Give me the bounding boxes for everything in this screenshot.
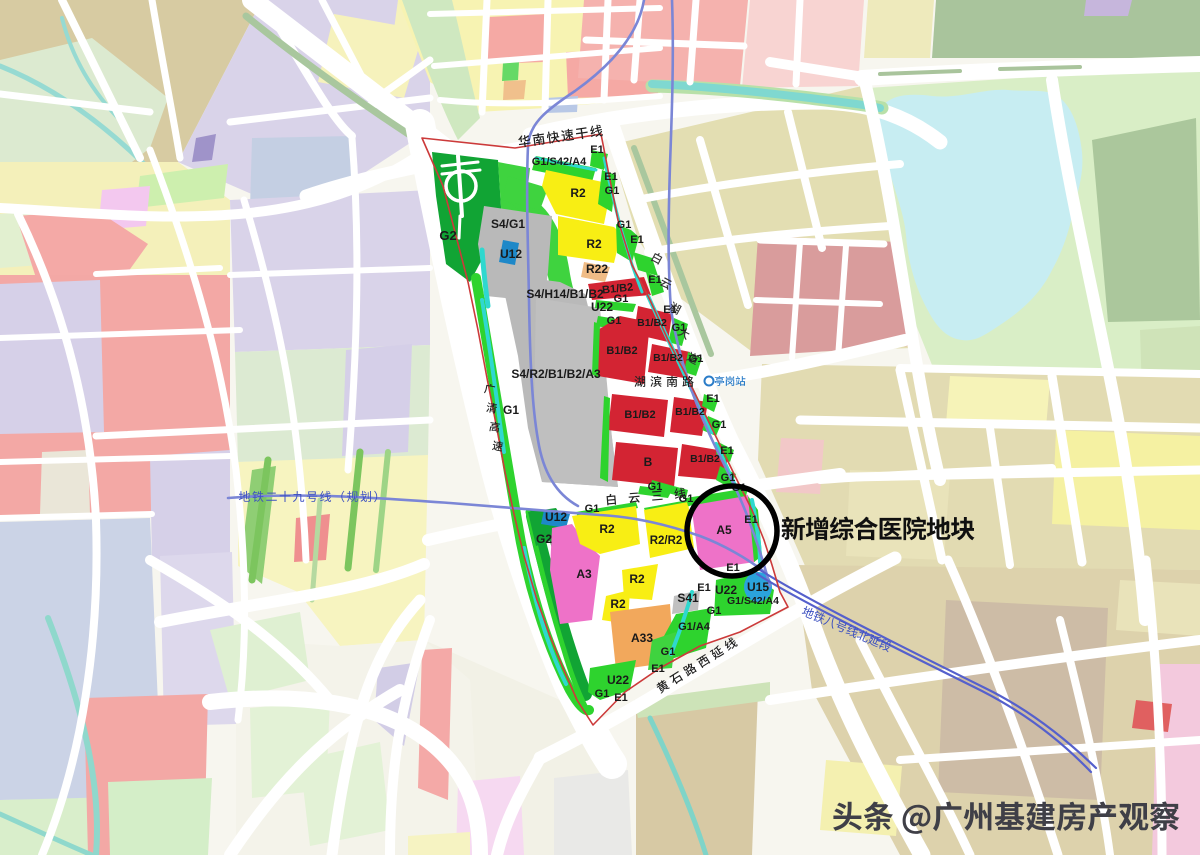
svg-text:R2: R2 (586, 237, 602, 251)
svg-text:E1: E1 (648, 274, 661, 286)
svg-text:G1: G1 (672, 322, 687, 334)
svg-text:S4/G1: S4/G1 (491, 217, 525, 231)
svg-text:G1: G1 (707, 605, 722, 617)
svg-text:U12: U12 (545, 510, 567, 524)
svg-text:B1/B2: B1/B2 (653, 352, 683, 364)
svg-text:R2: R2 (610, 597, 626, 611)
svg-text:U22: U22 (591, 300, 613, 314)
svg-text:E1: E1 (697, 582, 710, 594)
svg-text:R2: R2 (570, 186, 586, 200)
svg-text:B1/B2: B1/B2 (690, 453, 720, 465)
svg-text:E1: E1 (614, 692, 627, 704)
svg-text:A5: A5 (716, 523, 732, 537)
svg-text:E1: E1 (630, 234, 643, 246)
svg-text:E1: E1 (706, 393, 719, 405)
svg-text:E1: E1 (604, 171, 617, 183)
svg-text:G1: G1 (661, 646, 676, 658)
svg-text:G1: G1 (614, 293, 629, 305)
svg-text:R2/R2: R2/R2 (650, 535, 683, 547)
svg-text:G1/S42/A4: G1/S42/A4 (727, 595, 779, 607)
svg-text:E1: E1 (663, 304, 676, 316)
svg-text:E1: E1 (726, 562, 739, 574)
svg-text:G1: G1 (595, 688, 610, 700)
svg-text:B1/B2: B1/B2 (624, 409, 655, 421)
svg-text:G1: G1 (607, 315, 622, 327)
svg-text:U12: U12 (500, 247, 522, 261)
svg-text:S4/H14/B1/B2: S4/H14/B1/B2 (526, 287, 604, 301)
svg-text:A33: A33 (631, 631, 653, 645)
svg-text:G2: G2 (536, 532, 552, 546)
svg-text:R2: R2 (599, 522, 615, 536)
svg-text:G1: G1 (503, 403, 519, 417)
svg-text:B1/B2: B1/B2 (637, 317, 667, 329)
svg-text:B: B (644, 455, 653, 469)
svg-text:G2: G2 (439, 228, 456, 243)
svg-text:S41: S41 (677, 591, 699, 605)
svg-text:G1: G1 (689, 353, 704, 365)
svg-text:G1/A4: G1/A4 (678, 621, 711, 633)
svg-text:G1: G1 (679, 493, 694, 505)
svg-text:E1: E1 (744, 514, 757, 526)
svg-text:A3: A3 (576, 567, 592, 581)
svg-text:E1: E1 (720, 445, 733, 457)
svg-text:U15: U15 (747, 580, 769, 594)
svg-text:U22: U22 (607, 673, 629, 687)
svg-text:E1: E1 (590, 144, 603, 156)
svg-text:G1: G1 (712, 419, 727, 431)
svg-text:G1: G1 (617, 219, 632, 231)
svg-text:E1: E1 (651, 663, 664, 675)
svg-text:R2: R2 (629, 572, 645, 586)
svg-text:G1: G1 (605, 185, 620, 197)
svg-text:G1: G1 (585, 503, 600, 515)
svg-text:B1/B2: B1/B2 (606, 345, 637, 357)
svg-text:S4/R2/B1/B2/A3: S4/R2/B1/B2/A3 (511, 367, 601, 381)
svg-text:G1/S42/A4: G1/S42/A4 (532, 156, 587, 168)
svg-text:B1/B2: B1/B2 (675, 406, 705, 418)
svg-text:R22: R22 (586, 262, 608, 276)
